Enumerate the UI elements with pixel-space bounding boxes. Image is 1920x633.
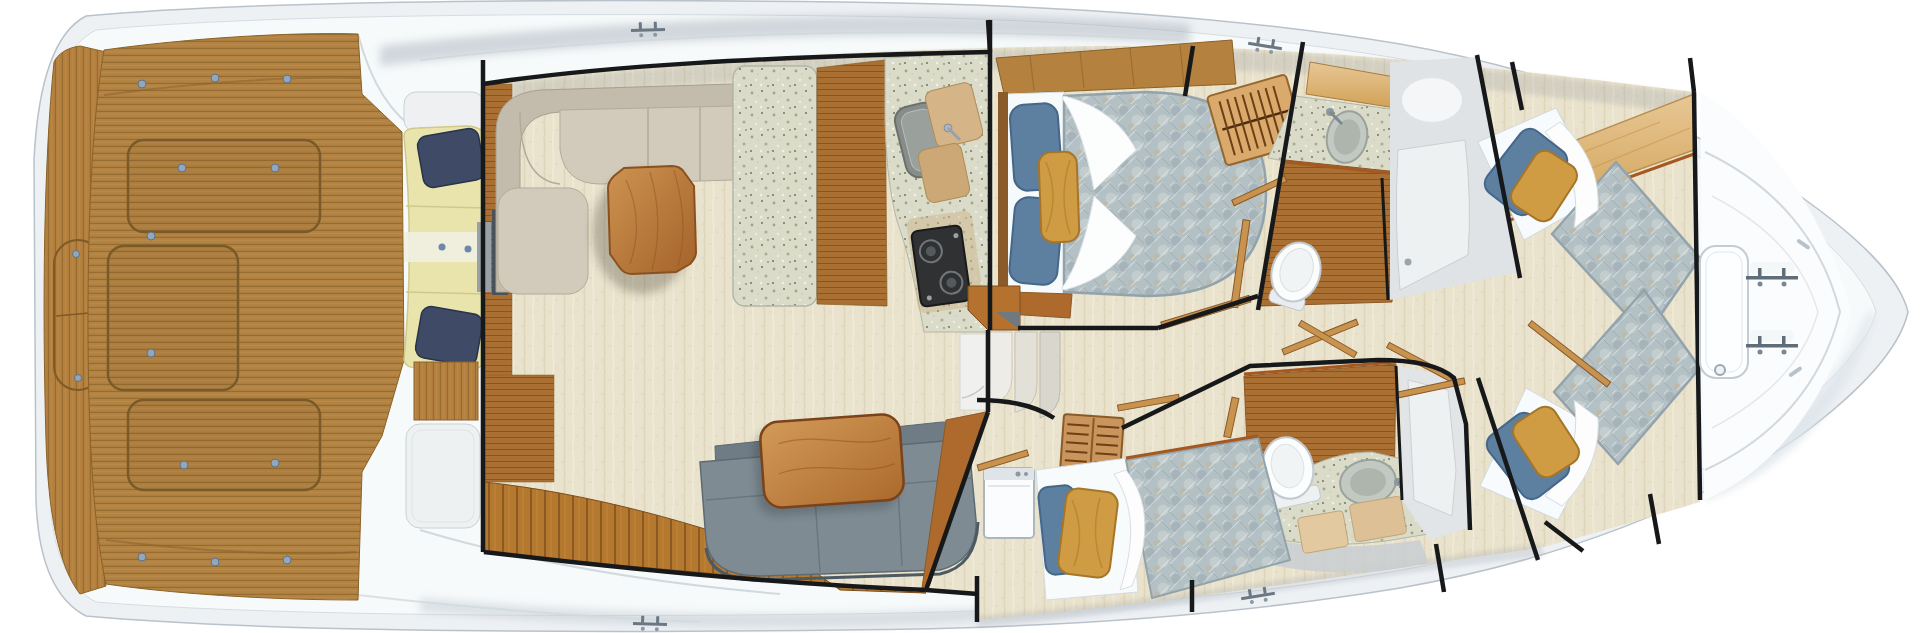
deck-plan-canvas: Sportfish yacht interior deck plan — ove… <box>0 0 1920 633</box>
navy-pillow <box>416 127 486 189</box>
step-2 <box>1015 332 1037 412</box>
step-3 <box>1040 332 1060 418</box>
engine-hatch-panel <box>406 424 480 528</box>
seat-fastener <box>465 246 472 253</box>
appliance-cabinet <box>984 468 1034 538</box>
head-port-teak-mat <box>1297 510 1349 553</box>
seat-fastener <box>439 244 446 251</box>
galley-island-counter <box>733 66 817 306</box>
navy-pillow <box>414 305 484 367</box>
sofa-chaise-cushion <box>498 188 588 294</box>
region-galley <box>733 52 990 332</box>
galley-teak-strip <box>817 60 887 306</box>
galley-cooktop <box>911 225 971 307</box>
galley-sole-block <box>484 375 554 482</box>
cockpit-hatch-3 <box>128 400 320 490</box>
cockpit-hatch-2 <box>108 246 238 390</box>
region-cockpit <box>73 34 405 600</box>
region-foredeck <box>1700 92 1852 500</box>
master-headboard <box>998 92 1008 296</box>
head-stbd-shower-glare <box>1402 78 1462 122</box>
mezzanine-wood-base <box>414 362 478 420</box>
foredeck-fitting <box>1715 365 1725 375</box>
settee-table <box>759 413 905 509</box>
cockpit-hatch-1 <box>128 140 320 232</box>
master-pillow-gold <box>1038 151 1079 242</box>
cabin-port-pillow-gold <box>1057 487 1119 579</box>
head-port-shower-pan <box>1408 380 1456 516</box>
region-mezzanine <box>404 92 486 528</box>
head-stbd-shower-drain <box>1405 259 1412 266</box>
yacht-deck-plan: Sportfish yacht interior deck plan — ove… <box>0 0 1920 633</box>
foredeck-hatch <box>1700 246 1748 378</box>
